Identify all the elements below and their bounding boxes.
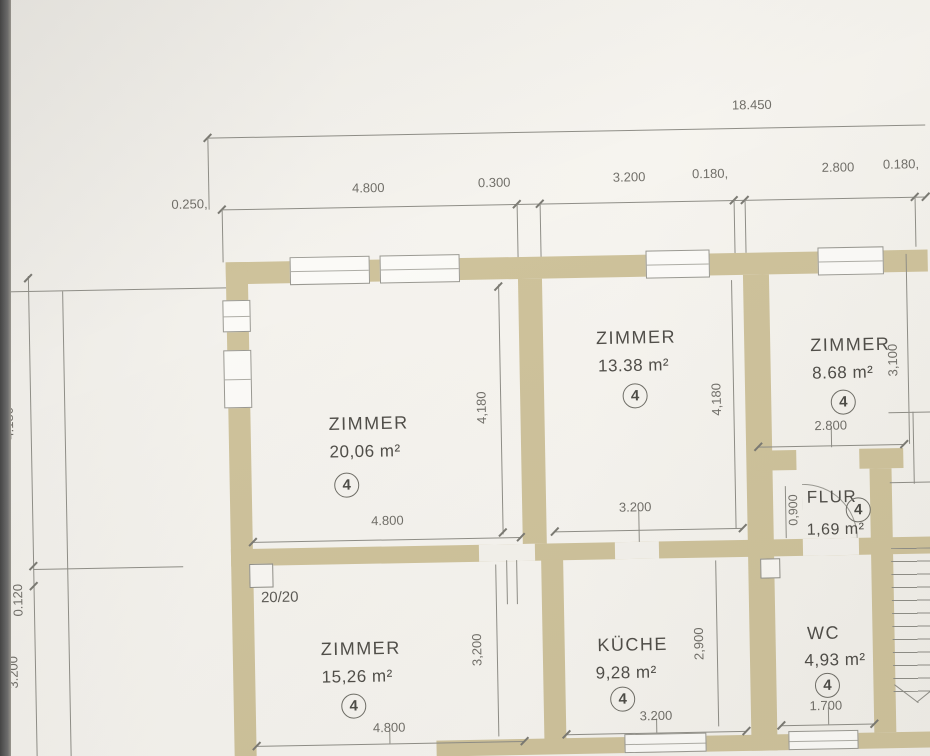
room-dim-zimmer-nw: 4.800 (371, 513, 404, 529)
shaft (249, 564, 273, 588)
dim-segment: 0.300 (478, 175, 511, 191)
room-area-wc: 4,93 m² (804, 650, 865, 671)
window (788, 730, 858, 750)
floor-plan-sheet: 18.450 0.250, 4.800 0.300 3.200 0.180, 2… (0, 0, 930, 756)
window (222, 300, 251, 333)
stair-count-note: 20/20 (261, 589, 299, 607)
door-opening (803, 538, 859, 556)
extension-line (207, 138, 209, 210)
dim-segment: 2.800 (822, 159, 855, 175)
dim-segment: 3.200 (613, 169, 646, 185)
extension-line (915, 197, 917, 247)
window (223, 350, 252, 409)
room-tag-zimmer-n: 4 (622, 383, 647, 408)
room-tag-zimmer-sw: 4 (341, 693, 366, 718)
door-leaf (516, 560, 518, 604)
extension-line (734, 200, 736, 253)
witness-line (638, 510, 640, 542)
dim-line (906, 254, 910, 444)
extension-line (517, 204, 519, 259)
room-tag-zimmer-ne: 4 (831, 389, 856, 414)
door-leaf (506, 560, 508, 604)
floor-plan-drawing: 18.450 0.250, 4.800 0.300 3.200 0.180, 2… (0, 0, 930, 756)
dim-line (498, 284, 504, 534)
window (624, 733, 706, 753)
door-opening (479, 544, 535, 562)
room-sidedim-zimmer-n: 4,180 (708, 383, 724, 416)
extension-line (33, 566, 183, 570)
room-sidedim-flur: 0,900 (786, 494, 801, 526)
window (290, 256, 370, 285)
room-area-zimmer-n: 13.38 m² (598, 355, 669, 376)
shaft (760, 558, 780, 578)
left-dim-middle: 0.120 (10, 584, 26, 617)
dim-overall: 18.450 (732, 97, 772, 113)
room-name-zimmer-nw: ZIMMER (328, 413, 408, 435)
room-name-kueche: KÜCHE (597, 634, 668, 656)
room-name-zimmer-sw: ZIMMER (321, 638, 401, 660)
room-tag-kueche: 4 (610, 686, 635, 711)
room-area-flur: 1,69 m² (807, 521, 865, 540)
staircase (891, 547, 930, 692)
room-sidedim-zimmer-ne: 3,100 (885, 344, 901, 377)
room-dim-zimmer-ne: 2.800 (814, 418, 847, 434)
photo-edge-strip (0, 0, 11, 756)
dim-line (495, 564, 499, 736)
room-name-zimmer-n: ZIMMER (596, 327, 676, 349)
dim-offset: 0.250, (171, 196, 207, 212)
window (817, 246, 884, 275)
extension-line (540, 204, 542, 259)
wall-between-zimmer-sw-kueche (541, 559, 566, 743)
dim-segment: 0.180, (692, 166, 728, 182)
window (380, 254, 460, 283)
room-dim-wc: 1.700 (809, 698, 842, 714)
room-sidedim-zimmer-nw: 4,180 (474, 391, 490, 424)
window (645, 249, 710, 278)
door-opening (615, 541, 659, 559)
room-tag-flur: 4 (846, 497, 871, 522)
room-dim-zimmer-n: 3.200 (619, 499, 652, 515)
stair-landing-line (890, 481, 930, 483)
wall-below-zimmer-ne-right (859, 448, 903, 469)
extension-line (222, 209, 224, 262)
dim-line-segments (222, 197, 927, 211)
left-dim-line (28, 276, 38, 756)
room-area-kueche: 9,28 m² (595, 663, 656, 684)
extension-line (0, 287, 226, 292)
wall-below-zimmer-ne-left (756, 450, 796, 471)
room-tag-zimmer-nw: 4 (334, 472, 359, 497)
stair-landing-line (912, 412, 914, 484)
room-name-wc: WC (807, 623, 840, 645)
room-dim-zimmer-sw: 4.800 (373, 720, 406, 736)
room-name-zimmer-ne: ZIMMER (810, 334, 890, 356)
dim-line (715, 560, 719, 726)
dim-line (731, 280, 737, 528)
dim-segment: 4.800 (352, 180, 385, 196)
room-area-zimmer-nw: 20,06 m² (329, 441, 400, 462)
room-area-zimmer-sw: 15,26 m² (322, 666, 393, 687)
extension-line (745, 200, 747, 253)
dim-segment: 0.180, (883, 156, 919, 172)
room-sidedim-zimmer-sw: 3,200 (469, 633, 485, 666)
left-dim-line (62, 291, 72, 756)
wall-vertical-right-core (743, 274, 778, 750)
wall-between-zimmer-nw-n (518, 279, 547, 544)
room-sidedim-kueche: 2,900 (691, 627, 707, 660)
room-tag-wc: 4 (815, 673, 840, 698)
dim-line-overall (207, 125, 925, 139)
room-dim-kueche: 3.200 (640, 708, 673, 724)
room-area-zimmer-ne: 8.68 m² (812, 363, 873, 384)
dim-line (253, 537, 521, 543)
dim-line (555, 528, 743, 532)
